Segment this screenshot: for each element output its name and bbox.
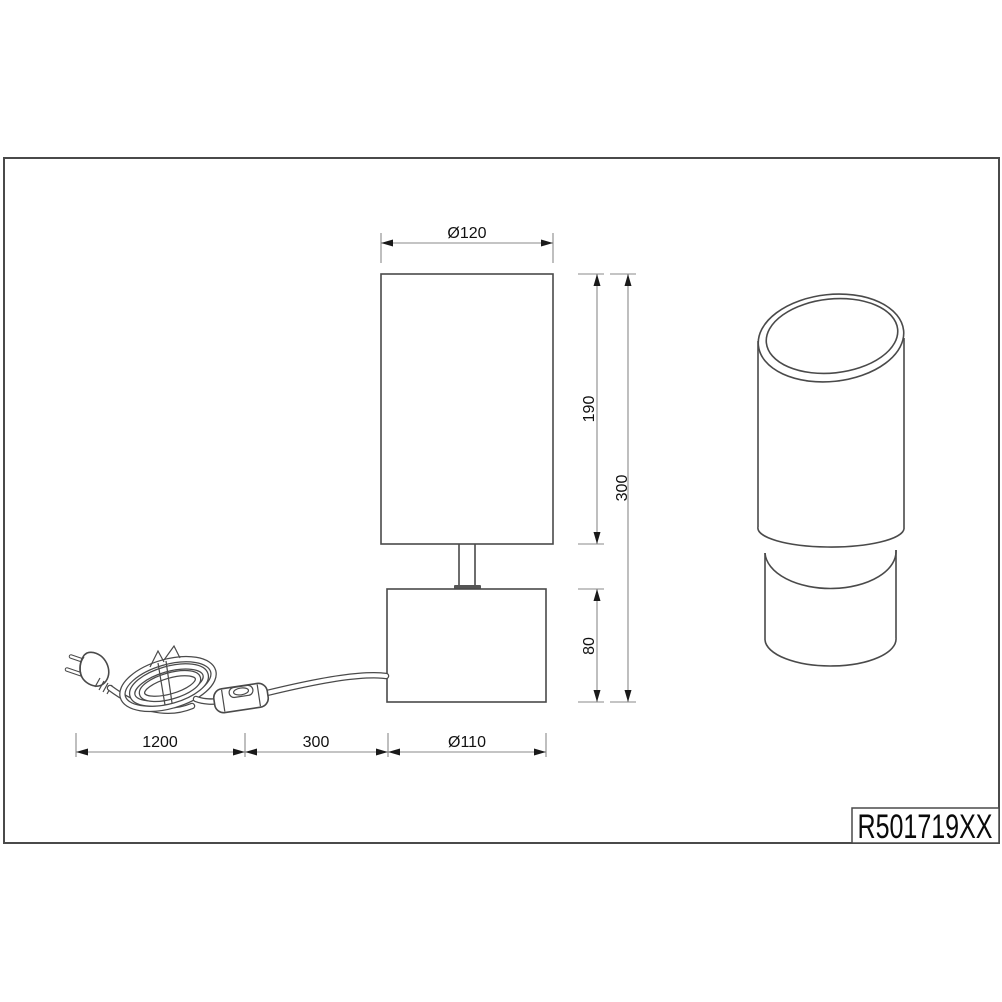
total-height-label: 300 bbox=[614, 475, 631, 502]
lamp-base-outline bbox=[387, 589, 546, 702]
base-diameter-label: Ø110 bbox=[448, 734, 486, 751]
front-view bbox=[381, 274, 553, 702]
cord-switch-distance-label: 300 bbox=[303, 734, 330, 751]
title-block: R501719XX bbox=[852, 808, 999, 846]
shade-height-label: 190 bbox=[581, 396, 598, 423]
lamp-shade-outline bbox=[381, 274, 553, 544]
cord-length-label: 1200 bbox=[142, 734, 178, 751]
base-height-label: 80 bbox=[581, 637, 598, 655]
product-code: R501719XX bbox=[858, 808, 993, 846]
drawing-page: Ø120 190 300 80 120 bbox=[0, 0, 1002, 1002]
technical-drawing-canvas: Ø120 190 300 80 120 bbox=[0, 0, 1002, 1002]
shade-diameter-label: Ø120 bbox=[447, 225, 486, 242]
